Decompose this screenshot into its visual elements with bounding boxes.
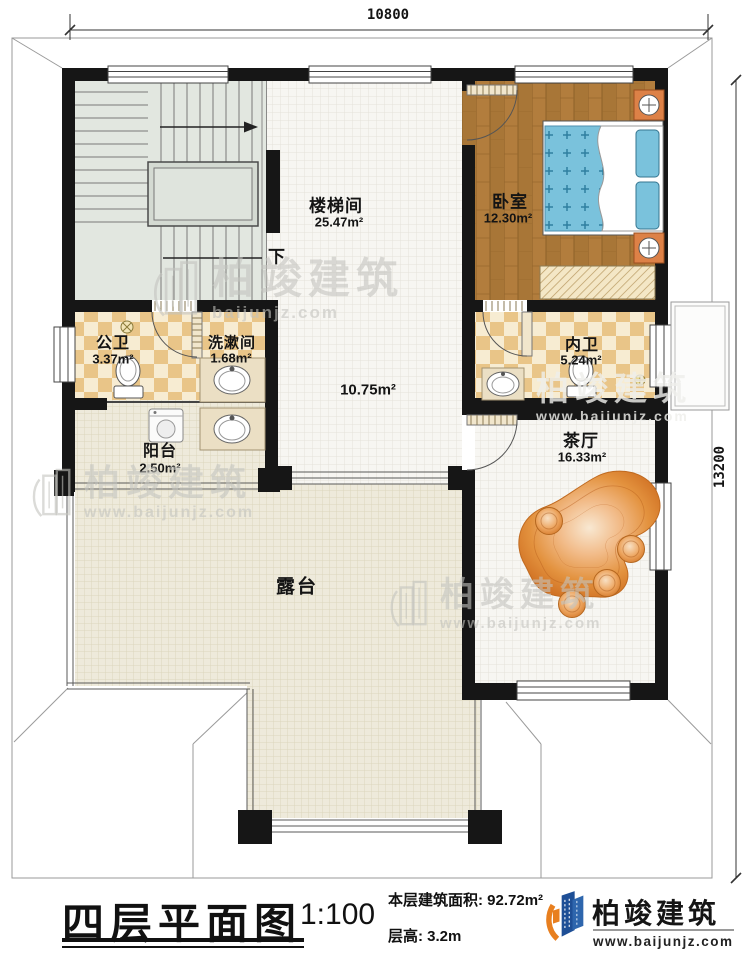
window-top-hall (309, 66, 431, 83)
floor-plan-page: 10800 13200 楼梯间 25.47m² 10.75m² 卧室 12.30… (0, 0, 750, 958)
window-right-ensuite (650, 325, 671, 387)
hall-upper-floor (266, 80, 462, 300)
bedroom-furniture (540, 90, 664, 299)
window-top-stairwell (108, 66, 228, 83)
wardrobe (540, 266, 655, 299)
nightstand-top (634, 90, 664, 120)
window-left-bath (54, 327, 75, 382)
room-label-washroom: 洗漱间 (208, 336, 256, 351)
nightstand-bottom (634, 233, 664, 263)
pillow (636, 182, 659, 229)
window-top-bedroom (515, 66, 633, 83)
brand-logo-icon (546, 889, 586, 946)
dimension-height-label: 13200 (713, 446, 727, 488)
title-underline-thick (62, 938, 304, 942)
ensuite-floor-drain (635, 375, 645, 385)
stair-down-label: 下 (268, 249, 286, 266)
brand-name: 柏竣建筑 (592, 892, 720, 932)
washing-machine (149, 409, 183, 442)
dimension-width-label: 10800 (367, 8, 409, 22)
room-label-tea-room: 茶厅 (563, 433, 599, 450)
room-area-washroom: 1.68m² (210, 352, 251, 365)
ensuite-sink (482, 368, 524, 400)
floor-area-label: 本层建筑面积: (388, 892, 487, 909)
floor-plan-drawing (0, 0, 750, 958)
plan-scale: 1:100 (300, 898, 375, 932)
floor-area-stat: 本层建筑面积: 92.72m² (388, 889, 543, 910)
room-label-terrace: 露台 (276, 578, 318, 597)
window-bottom-tea-room (517, 681, 630, 700)
room-area-public-bath: 3.37m² (92, 353, 133, 366)
floor-height-value: 3.2m (427, 928, 461, 945)
room-area-stairwell: 25.47m² (315, 216, 363, 229)
room-area-tea-room: 16.33m² (558, 451, 606, 464)
balcony-sink-counter (200, 408, 265, 450)
floor-height-label: 层高: (388, 928, 427, 945)
floor-area-value: 92.72m² (487, 892, 543, 909)
floor-height-stat: 层高: 3.2m (388, 925, 461, 946)
brand-website: www.baijunjz.com (593, 929, 734, 949)
terrace-pillar-left (238, 810, 272, 844)
room-area-bedroom: 12.30m² (484, 212, 532, 225)
room-label-balcony: 阳台 (143, 444, 177, 460)
room-area-ensuite: 5.24m² (560, 354, 601, 367)
title-underline-thin (62, 946, 304, 948)
pillow (636, 130, 659, 177)
room-area-balcony: 2.50m² (139, 462, 180, 475)
terrace-pillar-right (468, 810, 502, 844)
bed (543, 121, 663, 235)
right-outer-balcony (671, 302, 729, 410)
room-label-public-bath: 公卫 (96, 336, 130, 352)
room-label-bedroom: 卧室 (492, 194, 528, 211)
room-area-hall: 10.75m² (340, 383, 396, 398)
room-label-stairwell: 楼梯间 (309, 198, 363, 215)
public-bath-drain (121, 321, 133, 333)
